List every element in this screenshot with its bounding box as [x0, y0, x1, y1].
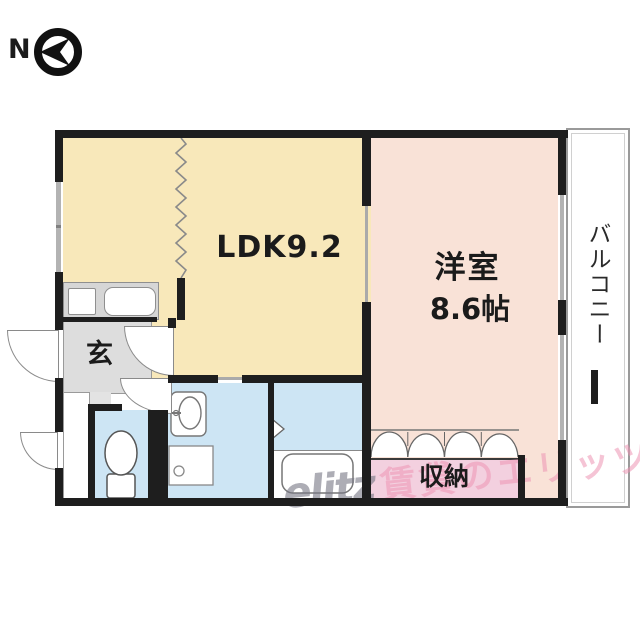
- window-right-upper: [560, 195, 564, 300]
- western-room-name-label: 洋室: [405, 253, 530, 284]
- wall-toilet-right: [148, 410, 168, 498]
- wall-ldk-south-1: [168, 375, 218, 383]
- wall-closet-right: [518, 455, 525, 503]
- wall-left-3: [55, 378, 63, 432]
- sliding-door-ldk-west: [365, 206, 368, 302]
- wall-bottom: [55, 498, 568, 506]
- window-right-lower: [560, 335, 564, 440]
- wall-wash-bath: [268, 383, 274, 498]
- window-left-mullion: [56, 225, 61, 228]
- wall-ldk-west-lower: [362, 302, 371, 506]
- toilet-icon: [105, 431, 137, 498]
- washroom-door-gap: [218, 377, 242, 380]
- wall-left-4: [55, 468, 63, 506]
- wall-left-2: [55, 272, 63, 330]
- floor-plan-canvas: elitz 賃貸のエリッツ N LDK9.2 洋室 8.6帖 玄 収納 バルコニ…: [0, 0, 640, 640]
- wall-accordion-stub: [177, 278, 185, 320]
- wall-toilet-left: [88, 404, 95, 498]
- ldk-label: LDK9.2: [197, 233, 362, 263]
- closet-label: 収納: [392, 464, 496, 489]
- wall-hall-stub: [168, 318, 176, 328]
- wall-ldk-south-2: [242, 375, 362, 383]
- wall-right-2: [558, 300, 566, 335]
- wall-left-1: [55, 130, 63, 182]
- wall-right-3: [558, 440, 566, 506]
- wall-ldk-west-upper: [362, 138, 371, 206]
- western-room-size-label: 8.6帖: [400, 295, 540, 324]
- washbasin-icon: [171, 392, 206, 436]
- entrance-label: 玄: [86, 341, 113, 368]
- north-compass-icon: [38, 32, 78, 72]
- north-label: N: [8, 36, 31, 63]
- wall-under-counter: [63, 317, 157, 322]
- wall-right-1: [558, 130, 566, 195]
- wall-top: [55, 130, 568, 138]
- accordion-partition-icon: [176, 138, 186, 278]
- balcony-label: バルコニー: [585, 222, 608, 432]
- washing-machine-pan-icon: [169, 446, 213, 485]
